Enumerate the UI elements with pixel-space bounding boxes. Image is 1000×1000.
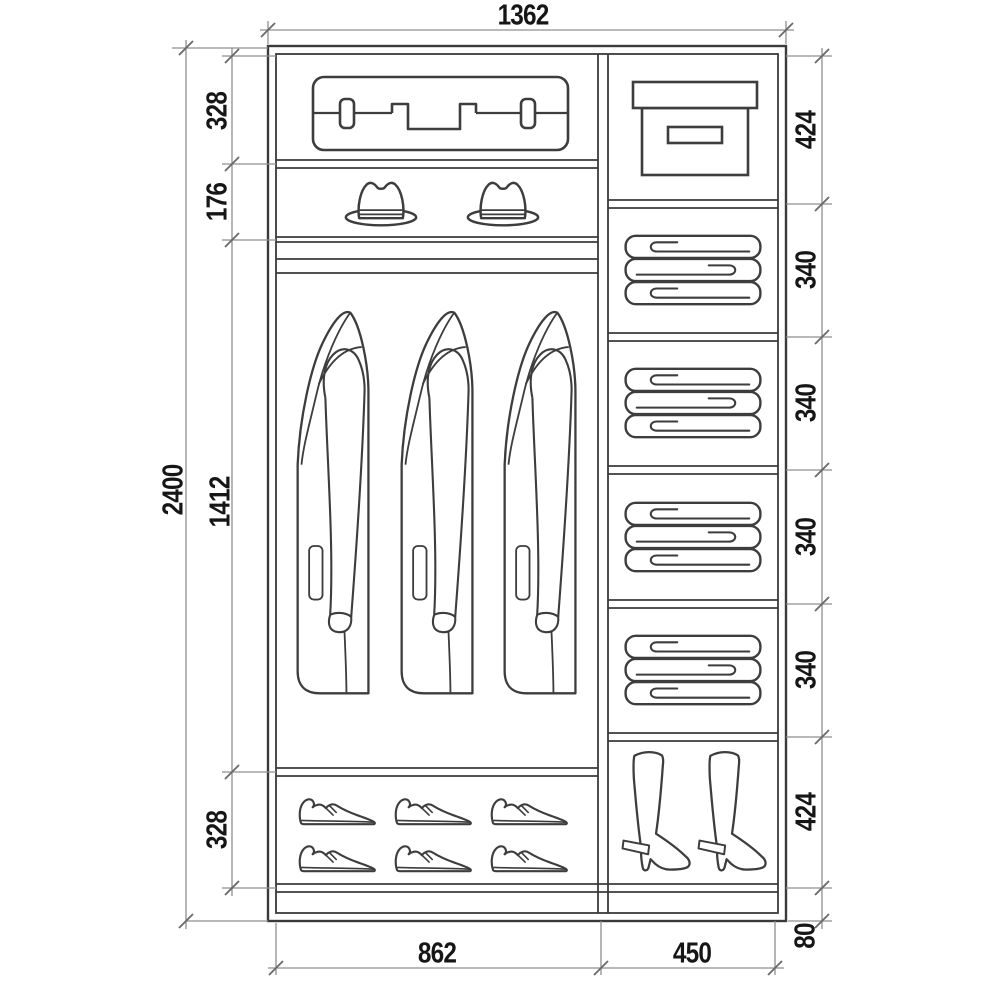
dim-linen-shelf3-label: 340	[791, 518, 824, 556]
dim-boot-shelf-label: 424	[791, 793, 824, 831]
dim-linen-shelf2-label: 340	[791, 384, 824, 422]
coat-on-hanger-icon	[402, 312, 473, 693]
dim-total-height-label: 2400	[158, 465, 191, 516]
dim-linen-shelf1-label: 340	[791, 251, 824, 289]
fedora-hat-icon	[468, 183, 538, 225]
coat-on-hanger-icon	[505, 312, 576, 693]
dress-shoe-icon	[492, 799, 567, 824]
diagram-linework	[0, 0, 1000, 1000]
dim-shoe-shelf-label: 328	[202, 811, 235, 849]
heeled-boot-icon	[623, 752, 690, 870]
dim-suitcase-shelf-label: 328	[202, 92, 235, 130]
dress-shoe-icon	[300, 846, 375, 871]
suitcase-icon	[313, 77, 568, 150]
folded-linens-icon	[626, 236, 761, 304]
heeled-boot-icon	[699, 752, 766, 870]
wardrobe-dimension-diagram: 1362 2400 328 176 1412 328 424 340 340 3…	[0, 0, 1000, 1000]
dim-left-column-width-label: 862	[418, 938, 456, 971]
folded-linens-icon	[626, 369, 761, 437]
dress-shoe-icon	[492, 846, 567, 871]
dim-total-width-label: 1362	[498, 0, 549, 33]
dim-right-column-width-label: 450	[673, 938, 711, 971]
folded-linens-icon	[626, 503, 761, 571]
dress-shoe-icon	[300, 799, 375, 824]
folded-linens-icon	[626, 636, 761, 704]
dim-linen-shelf4-label: 340	[791, 651, 824, 689]
storage-box-icon	[633, 82, 757, 175]
plinth-shelf	[276, 884, 778, 892]
dress-shoe-icon	[396, 846, 471, 871]
dress-shoe-icon	[396, 799, 471, 824]
dim-box-shelf-label: 424	[791, 111, 824, 149]
fedora-hat-icon	[346, 183, 416, 225]
dim-base-label: 80	[790, 923, 823, 948]
dim-hat-shelf-label: 176	[202, 183, 235, 221]
coat-on-hanger-icon	[298, 312, 369, 693]
dim-hanging-area-label: 1412	[205, 477, 238, 528]
